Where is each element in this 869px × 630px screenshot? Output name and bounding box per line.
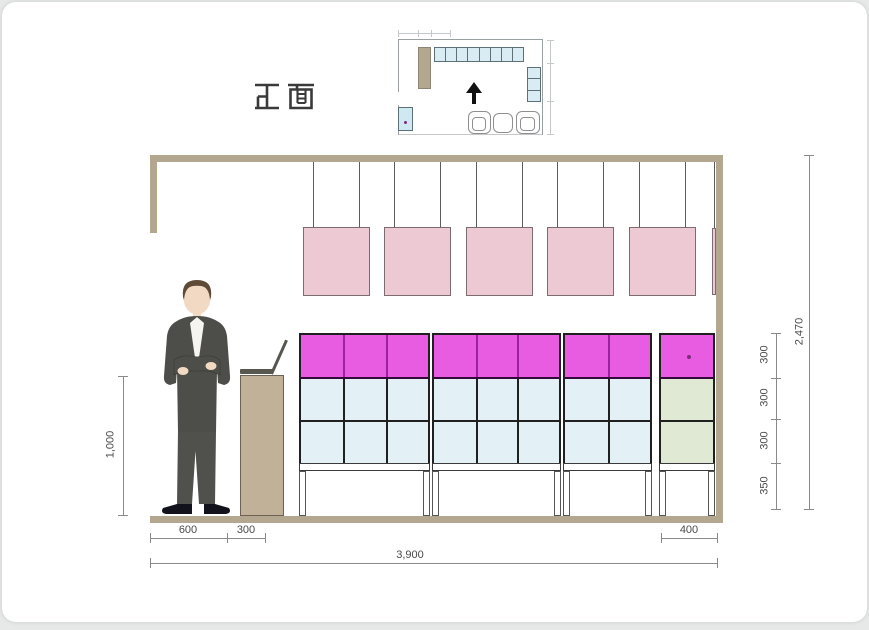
shelf-cell-blue: [301, 379, 343, 420]
dim-tick: [717, 558, 718, 568]
podium: [240, 375, 284, 516]
dim-line-total-height: [809, 155, 810, 509]
shelf-leg: [659, 471, 666, 516]
shelf-leg: [432, 471, 439, 516]
cabinet-cell-green: [661, 422, 713, 463]
dim-line-podium-height: [123, 376, 124, 515]
shelf-base-board: [659, 463, 715, 471]
shelf-leg: [423, 471, 430, 516]
person-shoe-left: [162, 504, 192, 514]
shelf-divider: [565, 420, 650, 422]
hanging-panel-edge: [712, 228, 716, 295]
shelf-cell-blue: [434, 422, 476, 463]
shelf-leg: [645, 471, 652, 516]
person-figure: [150, 276, 246, 518]
cabinet-cell-green: [661, 379, 713, 420]
shelf-base-board: [432, 463, 561, 471]
shelf-divider: [661, 377, 713, 379]
shelf-cell-blue: [608, 422, 651, 463]
panel-wire: [476, 162, 477, 228]
generated-layer: [0, 0, 869, 630]
dim-label-300: 300: [226, 524, 266, 537]
dim-label-total-width: 3,900: [386, 549, 434, 562]
person-trousers: [177, 431, 216, 504]
dim-label-row3: 300: [759, 421, 772, 461]
shelf-cell-blue: [565, 379, 608, 420]
shelf-cell-blue: [517, 379, 559, 420]
dim-label-row2: 300: [759, 378, 772, 418]
shelf-leg: [299, 471, 306, 516]
panel-wire: [685, 162, 686, 228]
dim-tick: [150, 558, 151, 568]
person-shoe-right: [204, 504, 230, 514]
dim-tick: [771, 463, 781, 464]
shelf-cell-blue: [565, 422, 608, 463]
shelf-base-board: [299, 463, 430, 471]
shelf-cell-magenta: [476, 335, 518, 377]
shelf-cell-magenta: [386, 335, 428, 377]
dim-label-400: 400: [669, 524, 709, 537]
person-hand-right: [206, 362, 217, 370]
person-hand-left: [178, 367, 189, 375]
shelf-cell-blue: [386, 422, 428, 463]
shelf-cell-magenta: [608, 335, 651, 377]
dim-tick: [717, 533, 718, 543]
shelf-cell-blue: [301, 422, 343, 463]
dim-label-podium-height: 1,000: [105, 423, 118, 467]
shelf-cell-blue: [608, 379, 651, 420]
cabinet-knob: [687, 355, 691, 359]
shelf-cell-blue: [343, 379, 385, 420]
shelf-leg: [554, 471, 561, 516]
dim-tick: [661, 533, 662, 543]
hanging-panel: [303, 227, 370, 296]
shelf-cell-blue: [476, 379, 518, 420]
shelf-base-board: [563, 463, 652, 471]
panel-wire: [603, 162, 604, 228]
dim-line-shelf-rows: [776, 333, 777, 509]
panel-wire: [359, 162, 360, 228]
shelf-cell-magenta: [343, 335, 385, 377]
shelf-cell-magenta: [565, 335, 608, 377]
hanging-panel: [547, 227, 614, 296]
panel-wire: [394, 162, 395, 228]
dim-label-total-height: 2,470: [794, 306, 807, 358]
dim-label-600: 600: [168, 524, 208, 537]
shelf-leg: [563, 471, 570, 516]
dim-label-row1: 300: [759, 335, 772, 375]
panel-wire: [639, 162, 640, 228]
dim-tick: [118, 376, 128, 377]
shelf-cell-magenta: [301, 335, 343, 377]
shelf-cell-magenta: [517, 335, 559, 377]
dim-tick: [771, 378, 781, 379]
panel-wire: [557, 162, 558, 228]
dim-line-total-width: [150, 563, 717, 564]
dim-label-legs: 350: [759, 466, 772, 506]
shelf-divider: [301, 420, 428, 422]
shelf-divider: [661, 420, 713, 422]
shelf-cell-blue: [434, 379, 476, 420]
dim-tick: [118, 515, 128, 516]
shelf-cell-blue: [343, 422, 385, 463]
shelf-cell-magenta: [434, 335, 476, 377]
shelf-leg: [708, 471, 715, 516]
dim-tick: [771, 333, 781, 334]
panel-wire: [440, 162, 441, 228]
shelf-cell-blue: [517, 422, 559, 463]
panel-wire: [522, 162, 523, 228]
panel-wire: [313, 162, 314, 228]
shelf-cell-blue: [386, 379, 428, 420]
shelf-divider: [434, 420, 559, 422]
dim-line-right-unit: [661, 538, 717, 539]
dim-line-left-segments: [150, 538, 265, 539]
hanging-panel: [384, 227, 451, 296]
hanging-panel: [466, 227, 533, 296]
dim-tick: [804, 509, 814, 510]
panel-wire: [714, 162, 715, 228]
dim-tick: [150, 533, 151, 543]
dim-tick: [804, 155, 814, 156]
hanging-panel: [629, 227, 696, 296]
drawing-canvas: 正面: [0, 0, 869, 630]
shelf-cell-blue: [476, 422, 518, 463]
dim-tick: [771, 419, 781, 420]
dim-tick: [771, 509, 781, 510]
